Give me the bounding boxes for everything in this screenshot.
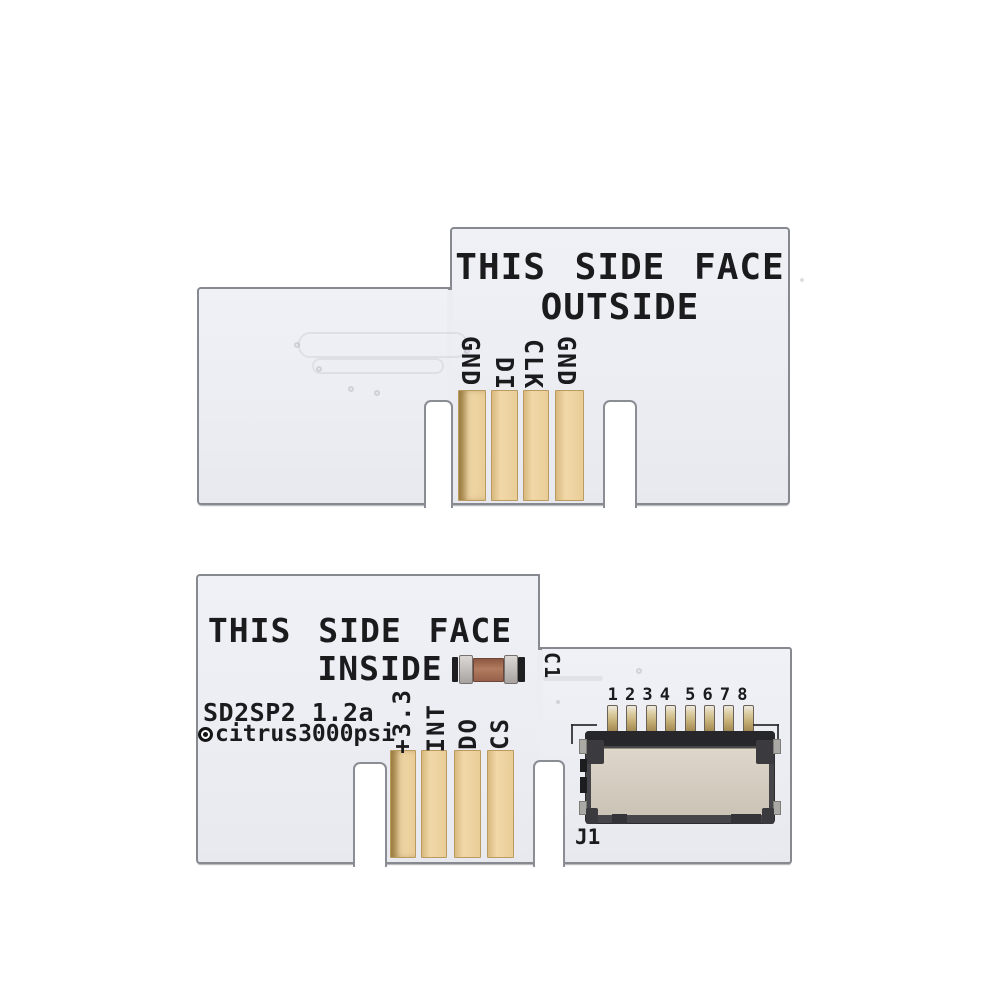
gold-pad [454,750,481,858]
author-name: citrus3000psi [215,721,395,747]
connector-silk-mark [571,724,573,744]
pin-label-int: INT [424,703,448,752]
pin-number: 7 [716,685,733,705]
via-dot [556,700,560,704]
fpc-connector-corner [586,808,598,824]
connector-pin [607,705,618,734]
gold-pad [555,390,584,501]
pin-label-gnd: GND [458,336,483,387]
capacitor-body [473,658,504,682]
connector-pin [665,705,676,734]
fpc-connector-actuator [591,748,769,815]
board-slot [603,400,637,508]
board-slot [533,760,565,867]
fpc-connector-tab [773,739,781,754]
gold-pad [421,750,447,858]
capacitor-terminal-left [459,655,473,684]
author-label: citrus3000psi [198,723,395,746]
gold-pad [458,390,486,501]
pin-label-3v3: +3.3 [390,688,414,754]
fpc-connector-foot [731,814,761,824]
connector-silk-mark [753,724,779,726]
board-slot [424,400,453,508]
via-dot [316,366,322,372]
pin-label-cs: CS [488,717,512,750]
capacitor-outline-left [452,657,458,682]
pin-label-di: DI [492,357,517,391]
connector-pin [743,705,754,734]
fpc-connector-corner [756,740,774,764]
gold-pad [487,750,514,858]
pin-label-clk: CLK [521,339,546,390]
pin-number: 3 [639,685,656,705]
copper-trace [312,358,444,374]
pin-number: 4 [656,685,673,705]
connector-pin [723,705,734,734]
fpc-connector-latch [580,759,587,772]
fpc-connector-top-bar [585,731,775,746]
fpc-connector-foot [612,814,627,824]
via-dot [636,668,642,674]
pin-number: 2 [621,685,638,705]
gold-pad [390,750,416,858]
fpc-connector-corner [762,808,774,824]
gold-pad [491,390,518,501]
capacitor-ref-label: C1 [542,652,562,680]
connector-pin [646,705,657,734]
pin-number: 8 [734,685,751,705]
connector-pin-numbers: 1 2 3 4 5 6 7 8 [604,685,751,705]
connector-silk-mark [571,724,597,726]
via-dot [374,390,380,396]
via-dot [800,278,804,282]
via-dot [294,342,300,348]
top-board-title-line1: THIS SIDE FACE [455,250,785,286]
pin-number: 1 [604,685,621,705]
connector-pins [607,705,754,734]
connector-pin [626,705,637,734]
top-board-left-section [197,287,450,505]
capacitor-terminal-right [504,655,518,684]
fpc-connector-corner [586,740,604,764]
board-slot [353,762,387,867]
fpc-connector-tab [579,739,587,754]
pin-number: 6 [699,685,716,705]
gold-pad [523,390,549,501]
bottom-board-title-line1: THIS SIDE FACE [200,614,520,647]
pin-label-do: DO [456,717,480,750]
capacitor-outline-right [518,657,525,682]
fpc-connector-latch [580,777,587,793]
fpc-connector-tab [773,801,781,815]
copper-trace [298,332,468,358]
pin-number: 5 [682,685,699,705]
pin-label-gnd2: GND [554,336,579,387]
citrus-logo-icon [198,727,213,742]
via-dot [348,386,354,392]
connector-pin [685,705,696,734]
connector-ref-label: J1 [575,827,600,848]
connector-pin [704,705,715,734]
top-board-title-line2: OUTSIDE [455,290,785,326]
